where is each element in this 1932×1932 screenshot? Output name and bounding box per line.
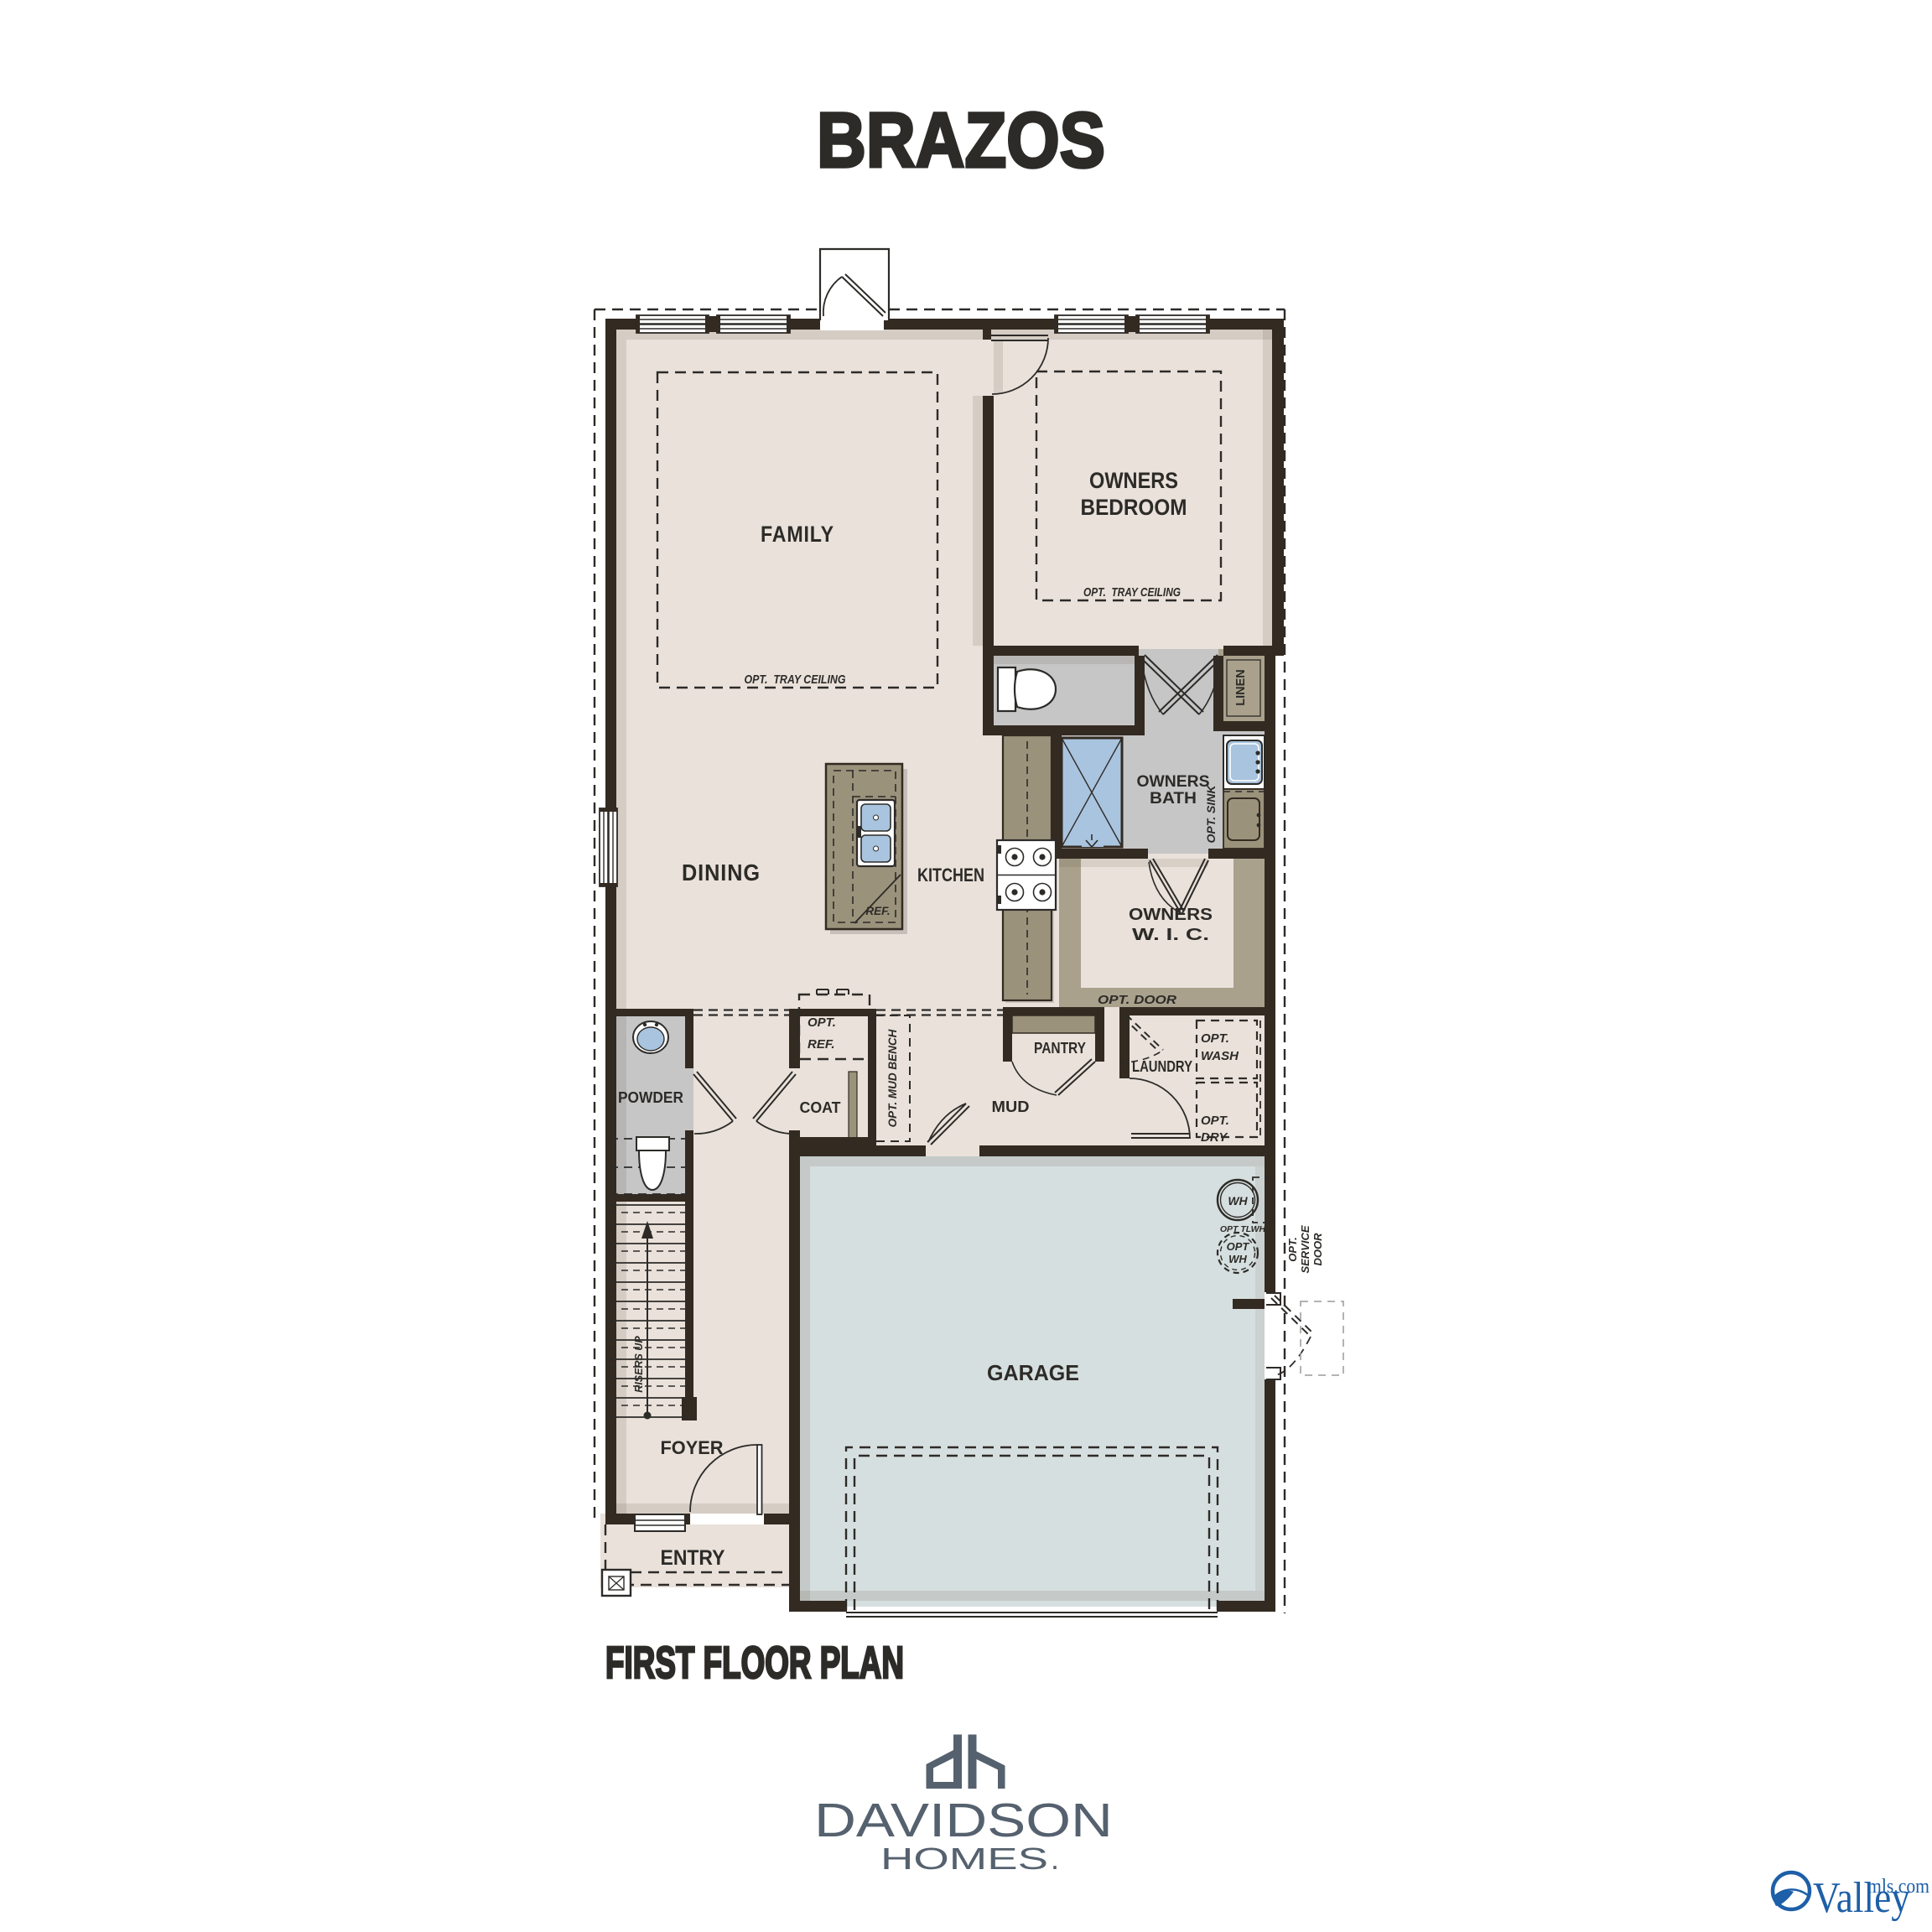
svg-text:ENTRY: ENTRY	[661, 1546, 725, 1570]
svg-text:mls.com: mls.com	[1867, 1876, 1929, 1898]
svg-text:POWDER: POWDER	[618, 1089, 683, 1106]
svg-text:WH: WH	[1228, 1253, 1247, 1265]
svg-text:HOMES: HOMES	[880, 1841, 1048, 1876]
svg-text:DOOR: DOOR	[1311, 1233, 1324, 1266]
svg-text:W. I. C.: W. I. C.	[1132, 926, 1209, 944]
svg-text:LINEN: LINEN	[1234, 669, 1248, 706]
svg-text:OWNERS: OWNERS	[1137, 773, 1210, 791]
svg-text:DRY: DRY	[1201, 1130, 1228, 1145]
svg-text:MUD: MUD	[992, 1098, 1030, 1115]
svg-text:WASH: WASH	[1201, 1049, 1239, 1063]
svg-text:OPT.: OPT.	[1201, 1031, 1229, 1046]
svg-text:.: .	[1051, 1841, 1059, 1876]
svg-text:BRAZOS: BRAZOS	[817, 96, 1105, 184]
svg-text:OPT.: OPT.	[1201, 1114, 1229, 1128]
svg-text:OWNERS: OWNERS	[1129, 906, 1213, 924]
svg-text:WH: WH	[1228, 1194, 1248, 1207]
svg-text:PANTRY: PANTRY	[1034, 1040, 1086, 1057]
svg-text:COAT: COAT	[800, 1099, 841, 1116]
svg-text:OPT. TRAY CEILING: OPT. TRAY CEILING	[745, 673, 846, 687]
svg-text:FOYER: FOYER	[661, 1437, 724, 1458]
svg-text:DINING: DINING	[682, 860, 761, 885]
svg-text:REF.: REF.	[808, 1037, 835, 1052]
svg-text:SERVICE: SERVICE	[1299, 1225, 1311, 1273]
svg-text:OPT.: OPT.	[1286, 1237, 1299, 1261]
svg-text:OWNERS: OWNERS	[1089, 468, 1178, 493]
svg-text:KITCHEN: KITCHEN	[917, 865, 984, 885]
svg-text:LAUNDRY: LAUNDRY	[1132, 1058, 1192, 1075]
svg-text:GARAGE: GARAGE	[987, 1360, 1079, 1385]
svg-text:BATH: BATH	[1150, 790, 1197, 808]
svg-text:OPT TLWH: OPT TLWH	[1220, 1224, 1266, 1234]
svg-text:FIRST FLOOR PLAN: FIRST FLOOR PLAN	[605, 1638, 904, 1688]
svg-text:RISERS UP: RISERS UP	[633, 1336, 645, 1393]
svg-text:REF.: REF.	[865, 905, 890, 917]
svg-text:OPT. MUD BENCH: OPT. MUD BENCH	[886, 1029, 899, 1127]
svg-text:OPT. TRAY CEILING: OPT. TRAY CEILING	[1083, 585, 1181, 600]
svg-text:FAMILY: FAMILY	[761, 522, 834, 547]
svg-text:OPT: OPT	[1227, 1240, 1250, 1253]
svg-text:OPT.: OPT.	[808, 1015, 836, 1030]
svg-text:OPT. DOOR: OPT. DOOR	[1098, 993, 1176, 1007]
svg-text:BEDROOM: BEDROOM	[1081, 495, 1187, 520]
svg-text:OPT. SINK: OPT. SINK	[1204, 785, 1218, 844]
svg-text:DAVIDSON: DAVIDSON	[814, 1794, 1113, 1847]
